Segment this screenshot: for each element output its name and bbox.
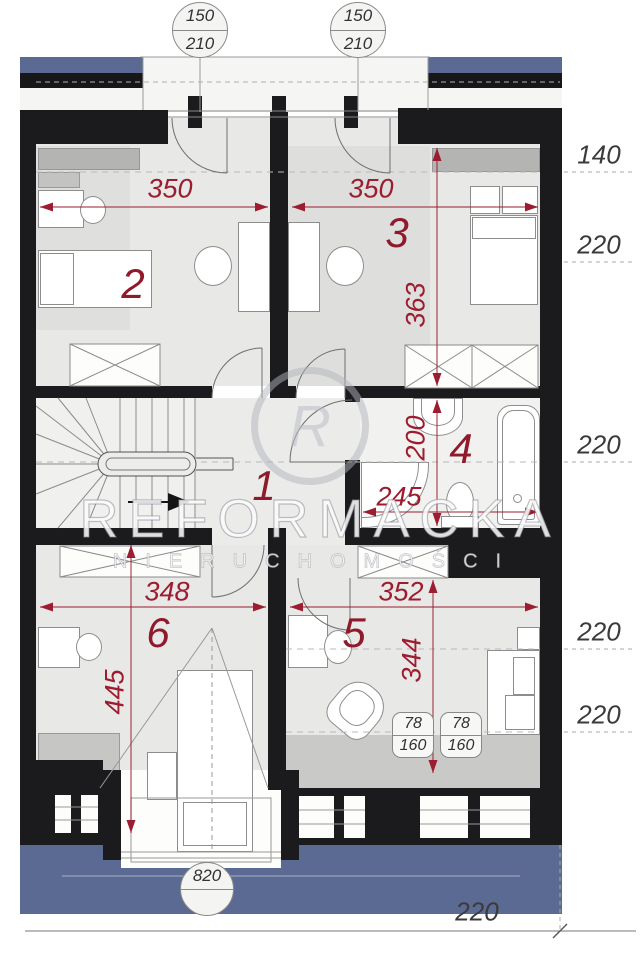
room-number-2: 2 — [121, 260, 144, 308]
bottom-dimension-line — [25, 924, 636, 938]
elevation-label-220: 220 — [577, 230, 620, 261]
dim-room3-width: 350 — [348, 174, 393, 205]
dim-room5-depth: 344 — [397, 637, 428, 682]
skylight-height: 160 — [441, 736, 481, 758]
dim-room3-depth: 363 — [401, 282, 432, 327]
skylight-width: 78 — [441, 713, 481, 736]
watermark-subtitle: NIERUCHOMOŚCI — [113, 551, 519, 574]
watermark-logo-ring: R — [251, 367, 369, 485]
door-marker-width: 150 — [331, 3, 385, 31]
front-width-marker: 820 — [180, 862, 234, 916]
bay-window-frame — [55, 798, 530, 876]
door-marker-width: 150 — [173, 3, 227, 31]
door-marker-right: 150 210 — [330, 2, 386, 58]
balcony-lines — [36, 57, 560, 117]
door-marker-height: 210 — [331, 31, 385, 58]
elevation-label-140: 140 — [577, 140, 620, 171]
floor-plan: 350 350 363 200 245 348 352 445 344 1 2 … — [0, 0, 640, 960]
skylight-height: 160 — [393, 736, 433, 758]
room-number-5: 5 — [342, 609, 365, 657]
elevation-leader-dashes — [560, 172, 634, 931]
skylight-marker-2: 78 160 — [440, 712, 482, 758]
door-marker-height: 210 — [173, 31, 227, 58]
dim-room5-width: 352 — [378, 577, 423, 608]
room-number-6: 6 — [146, 609, 169, 657]
door-marker-left: 150 210 — [172, 2, 228, 58]
roof-slope-lines-room6 — [100, 628, 268, 852]
dim-room6-depth: 445 — [100, 669, 131, 714]
room-number-3: 3 — [385, 209, 408, 257]
elevation-label-220: 220 — [577, 700, 620, 731]
watermark-monogram: R — [289, 393, 331, 460]
elevation-label-220: 220 — [577, 617, 620, 648]
dim-room6-width: 348 — [144, 577, 189, 608]
front-width-empty — [181, 890, 233, 916]
watermark-brand: REFORMACKA — [79, 488, 560, 550]
elevation-label-220: 220 — [577, 430, 620, 461]
front-width-value: 820 — [181, 863, 233, 890]
skylight-width: 78 — [393, 713, 433, 736]
elevation-label-bottom-220: 220 — [455, 897, 498, 928]
dim-bath-depth: 200 — [401, 415, 432, 460]
room-number-4: 4 — [449, 425, 472, 473]
dim-room2-width: 350 — [147, 174, 192, 205]
skylight-marker-1: 78 160 — [392, 712, 434, 758]
